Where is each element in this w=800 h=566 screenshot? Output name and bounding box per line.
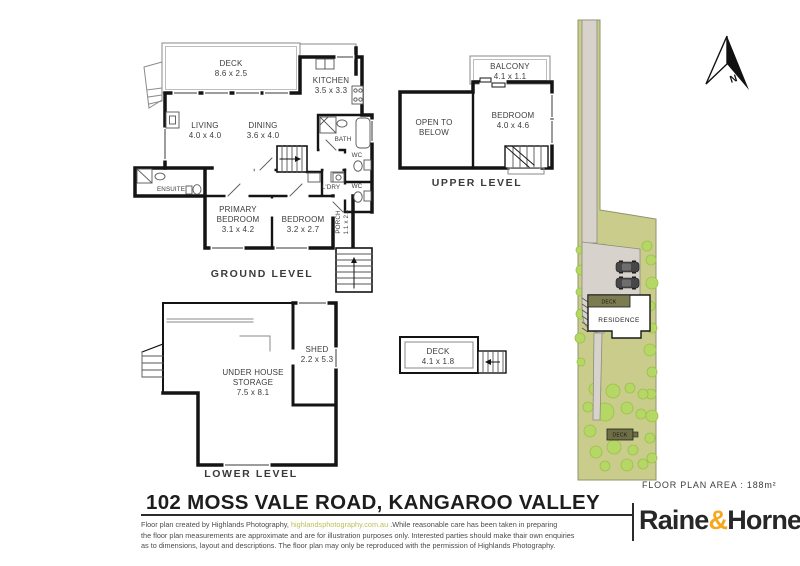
disclaimer-text: Floor plan created by Highlands Photogra… bbox=[141, 520, 291, 529]
title-divider bbox=[141, 514, 633, 516]
disclaimer: Floor plan created by Highlands Photogra… bbox=[141, 520, 636, 552]
room-label-bedroom: BEDROOM bbox=[282, 215, 325, 224]
room-label-deck: DECK bbox=[219, 59, 242, 68]
room-dims-living: 4.0 x 4.0 bbox=[189, 131, 222, 140]
room-dims-upper-bedroom: 4.0 x 4.6 bbox=[497, 121, 530, 130]
label-open-to-below-2: BELOW bbox=[419, 128, 449, 137]
car-icon bbox=[616, 261, 639, 274]
room-label-detached-deck: DECK bbox=[426, 347, 449, 356]
svg-text:1.1 x 2.2: 1.1 x 2.2 bbox=[343, 209, 350, 234]
room-label-storage-1: UNDER HOUSE bbox=[222, 368, 283, 377]
room-dims-detached-deck: 4.1 x 1.8 bbox=[422, 357, 455, 366]
disclaimer-line-1: Floor plan created by Highlands Photogra… bbox=[141, 520, 636, 531]
disclaimer-link[interactable]: highlandsphotography.com.au bbox=[291, 520, 388, 529]
room-dims-storage: 7.5 x 8.1 bbox=[237, 388, 270, 397]
ground-exterior-stairs bbox=[336, 248, 372, 292]
disclaimer-line-2: the floor plan measurements are approxim… bbox=[141, 531, 636, 542]
lower-level-label: LOWER LEVEL bbox=[204, 468, 297, 480]
car-icon bbox=[616, 277, 639, 290]
disclaimer-text: .While reasonable care has been taken in… bbox=[388, 520, 557, 529]
brand-ampersand: & bbox=[709, 505, 728, 535]
floor-plan-area-label: FLOOR PLAN AREA : 188m² bbox=[642, 480, 776, 490]
room-label-living: LIVING bbox=[191, 121, 218, 130]
room-label-primary-2: BEDROOM bbox=[217, 215, 260, 224]
room-label-shed: SHED bbox=[305, 345, 328, 354]
ground-level-plan: DECK 8.6 x 2.5 KITCHEN 3.5 x 3.3 LIVING … bbox=[135, 43, 372, 292]
room-label-bath: BATH bbox=[335, 136, 352, 143]
lower-garden-deck-label: DECK bbox=[612, 433, 627, 439]
brand-word-2: Horne bbox=[727, 505, 800, 535]
residence-building: DECK RESIDENCE bbox=[588, 295, 650, 338]
detached-deck-stairs bbox=[478, 351, 506, 373]
lower-level-plan: SHED 2.2 x 5.3 UNDER HOUSE STORAGE 7.5 x… bbox=[142, 303, 336, 480]
room-label-balcony: BALCONY bbox=[490, 62, 530, 71]
room-label-laundry: L'DRY bbox=[322, 184, 341, 191]
room-dims-kitchen: 3.5 x 3.3 bbox=[315, 86, 348, 95]
room-label-upper-bedroom: BEDROOM bbox=[492, 111, 535, 120]
north-arrow-icon: N bbox=[706, 36, 749, 90]
room-label-dining: DINING bbox=[248, 121, 277, 130]
brand-word-1: Raine bbox=[639, 505, 709, 535]
lower-interior-lines bbox=[167, 319, 270, 351]
room-label-kitchen: KITCHEN bbox=[313, 76, 350, 85]
garden-path bbox=[593, 333, 602, 420]
label-open-to-below-1: OPEN TO bbox=[415, 118, 452, 127]
upper-level-label: UPPER LEVEL bbox=[432, 177, 523, 189]
disclaimer-line-3: as to dimensions, layout and description… bbox=[141, 541, 636, 552]
ground-internal-stairs bbox=[277, 146, 307, 172]
site-plan: DECK RESIDENCE DECK bbox=[575, 20, 658, 480]
detached-deck-plan: DECK 4.1 x 1.8 bbox=[400, 337, 506, 373]
lower-exterior-stairs bbox=[142, 344, 163, 377]
brand-logo: Raine&Horne. bbox=[639, 505, 800, 536]
room-dims-bedroom: 3.2 x 2.7 bbox=[287, 225, 320, 234]
room-dims-deck: 8.6 x 2.5 bbox=[215, 69, 248, 78]
room-label-wc-upper: WC bbox=[352, 152, 363, 159]
room-dims-balcony: 4.1 x 1.1 bbox=[494, 72, 527, 81]
room-dims-primary: 3.1 x 4.2 bbox=[222, 225, 255, 234]
room-label-wc-lower: WC bbox=[352, 183, 363, 190]
room-label-primary-1: PRIMARY bbox=[219, 205, 257, 214]
upper-level-plan: BALCONY 4.1 x 1.1 OPEN TO BELOW BEDROOM … bbox=[400, 56, 552, 189]
room-label-storage-2: STORAGE bbox=[233, 378, 273, 387]
room-label-ensuite: ENSUITE bbox=[157, 186, 185, 193]
page-title: 102 MOSS VALE ROAD, KANGAROO VALLEY bbox=[146, 491, 600, 515]
room-label-porch: PORCH 1.1 x 2.2 bbox=[335, 209, 350, 234]
ground-level-label: GROUND LEVEL bbox=[211, 268, 314, 280]
residence-deck-label: DECK bbox=[601, 300, 616, 306]
svg-text:PORCH: PORCH bbox=[335, 210, 342, 234]
room-dims-shed: 2.2 x 5.3 bbox=[301, 355, 334, 364]
room-dims-dining: 3.6 x 4.0 bbox=[247, 131, 280, 140]
residence-label: RESIDENCE bbox=[598, 317, 640, 324]
lower-garden-deck: DECK bbox=[607, 429, 638, 440]
